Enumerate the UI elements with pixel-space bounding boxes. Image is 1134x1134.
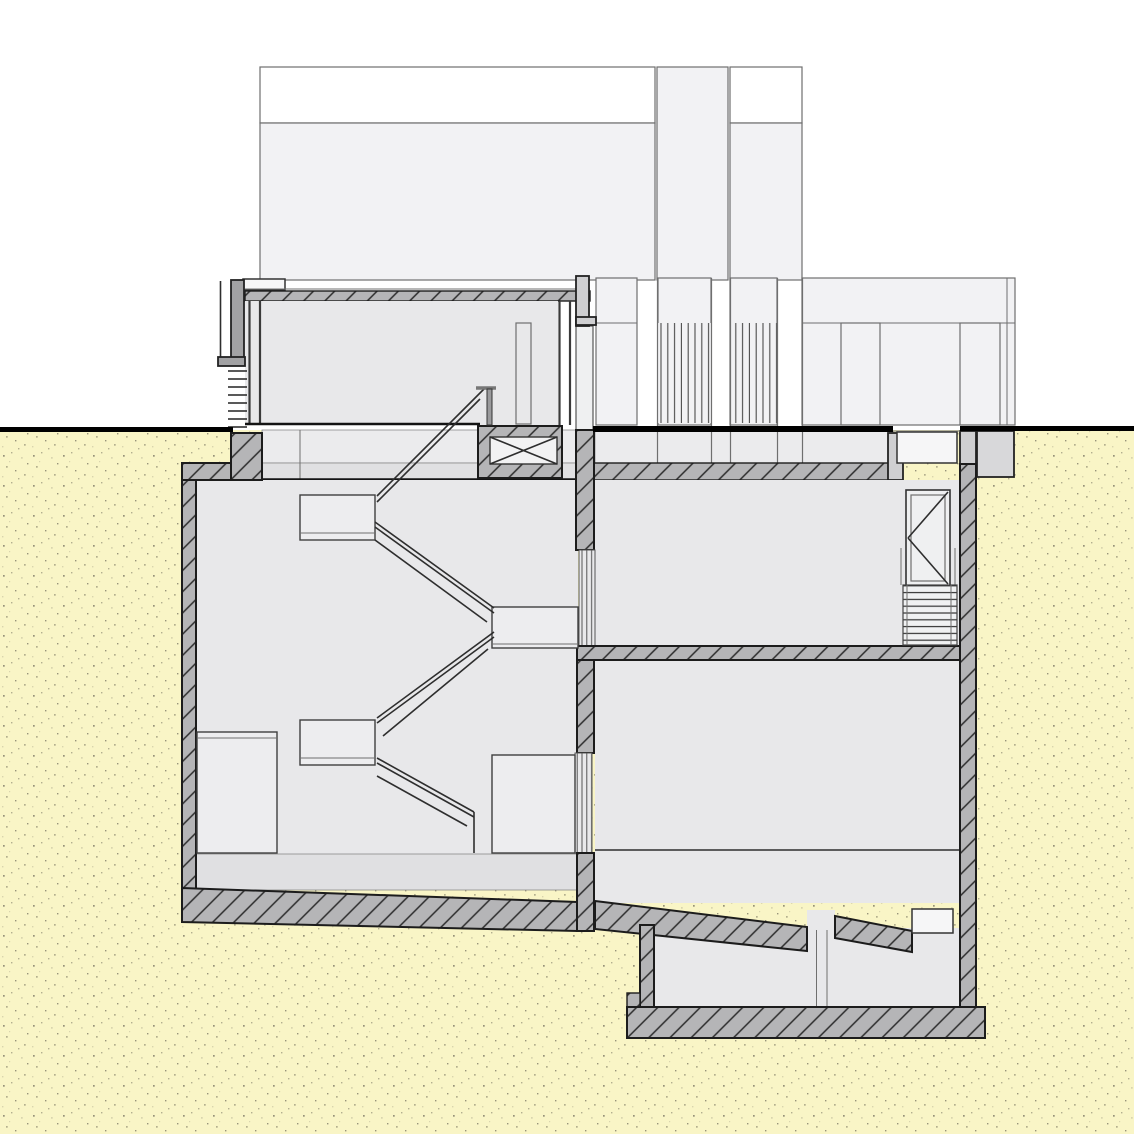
left-wall-top xyxy=(231,433,262,480)
stair-newel-post xyxy=(487,389,492,425)
right-lower-room xyxy=(595,660,960,903)
entrance-door-leaf xyxy=(906,490,950,586)
entry-roof-slab xyxy=(245,291,590,301)
entry-right-wall xyxy=(576,326,593,430)
parapet-foot xyxy=(218,357,245,366)
louver-band-left xyxy=(260,67,655,123)
terrace-level xyxy=(596,278,1015,425)
louver-band-right xyxy=(730,67,802,123)
upper-block-right xyxy=(730,123,802,280)
balustrade-panel-2 xyxy=(658,323,711,423)
entry-wall-cap-foot xyxy=(576,317,596,325)
right-exterior-wall xyxy=(960,464,976,1008)
side-entrance xyxy=(901,490,957,645)
parapet-post xyxy=(231,280,244,364)
architectural-section-drawing xyxy=(0,0,1134,1134)
ground-line-right xyxy=(960,426,1134,431)
under-stair-cabinet xyxy=(492,755,575,853)
center-wall-upper xyxy=(576,430,594,550)
left-wall-step xyxy=(182,463,231,480)
glazed-entry-room xyxy=(218,276,596,430)
terrace-slab-hatched xyxy=(590,463,893,480)
entrance-steps xyxy=(903,585,957,645)
cellar-left-wall xyxy=(640,925,654,1009)
left-exterior-wall xyxy=(182,480,196,890)
entry-floor-box-beam xyxy=(478,426,562,478)
middle-landing xyxy=(492,607,578,648)
floor-access-hatch xyxy=(912,909,953,933)
floor-slab-opening xyxy=(807,910,835,930)
ground-line-left xyxy=(0,427,233,432)
left-room-floor-band xyxy=(196,854,578,890)
right-wing-block xyxy=(802,278,1015,425)
terrace-floor-band xyxy=(595,431,893,463)
upper-block-left xyxy=(260,123,655,280)
side-entrance-opening xyxy=(897,432,957,463)
section-canvas xyxy=(0,0,1134,1134)
window-well-grille xyxy=(228,371,247,427)
center-wall-window xyxy=(579,550,595,646)
terrace-panel-1 xyxy=(596,278,637,425)
balustrade-panel-3 xyxy=(730,323,777,423)
roof-edge-box xyxy=(243,279,285,290)
center-wall-door xyxy=(575,753,592,853)
center-wall-middle xyxy=(577,660,594,753)
cellar-bottom-slab xyxy=(627,1007,985,1038)
right-wall-top xyxy=(960,431,976,464)
exterior-step-block xyxy=(977,431,1014,477)
left-cabinet xyxy=(197,732,277,853)
right-rooms-mid-slab xyxy=(577,646,965,660)
superstructure xyxy=(260,67,802,280)
center-wall-lower xyxy=(577,853,594,931)
ground-line-terrace xyxy=(593,426,893,432)
entry-room-interior xyxy=(245,301,558,425)
upper-tower xyxy=(657,67,728,280)
